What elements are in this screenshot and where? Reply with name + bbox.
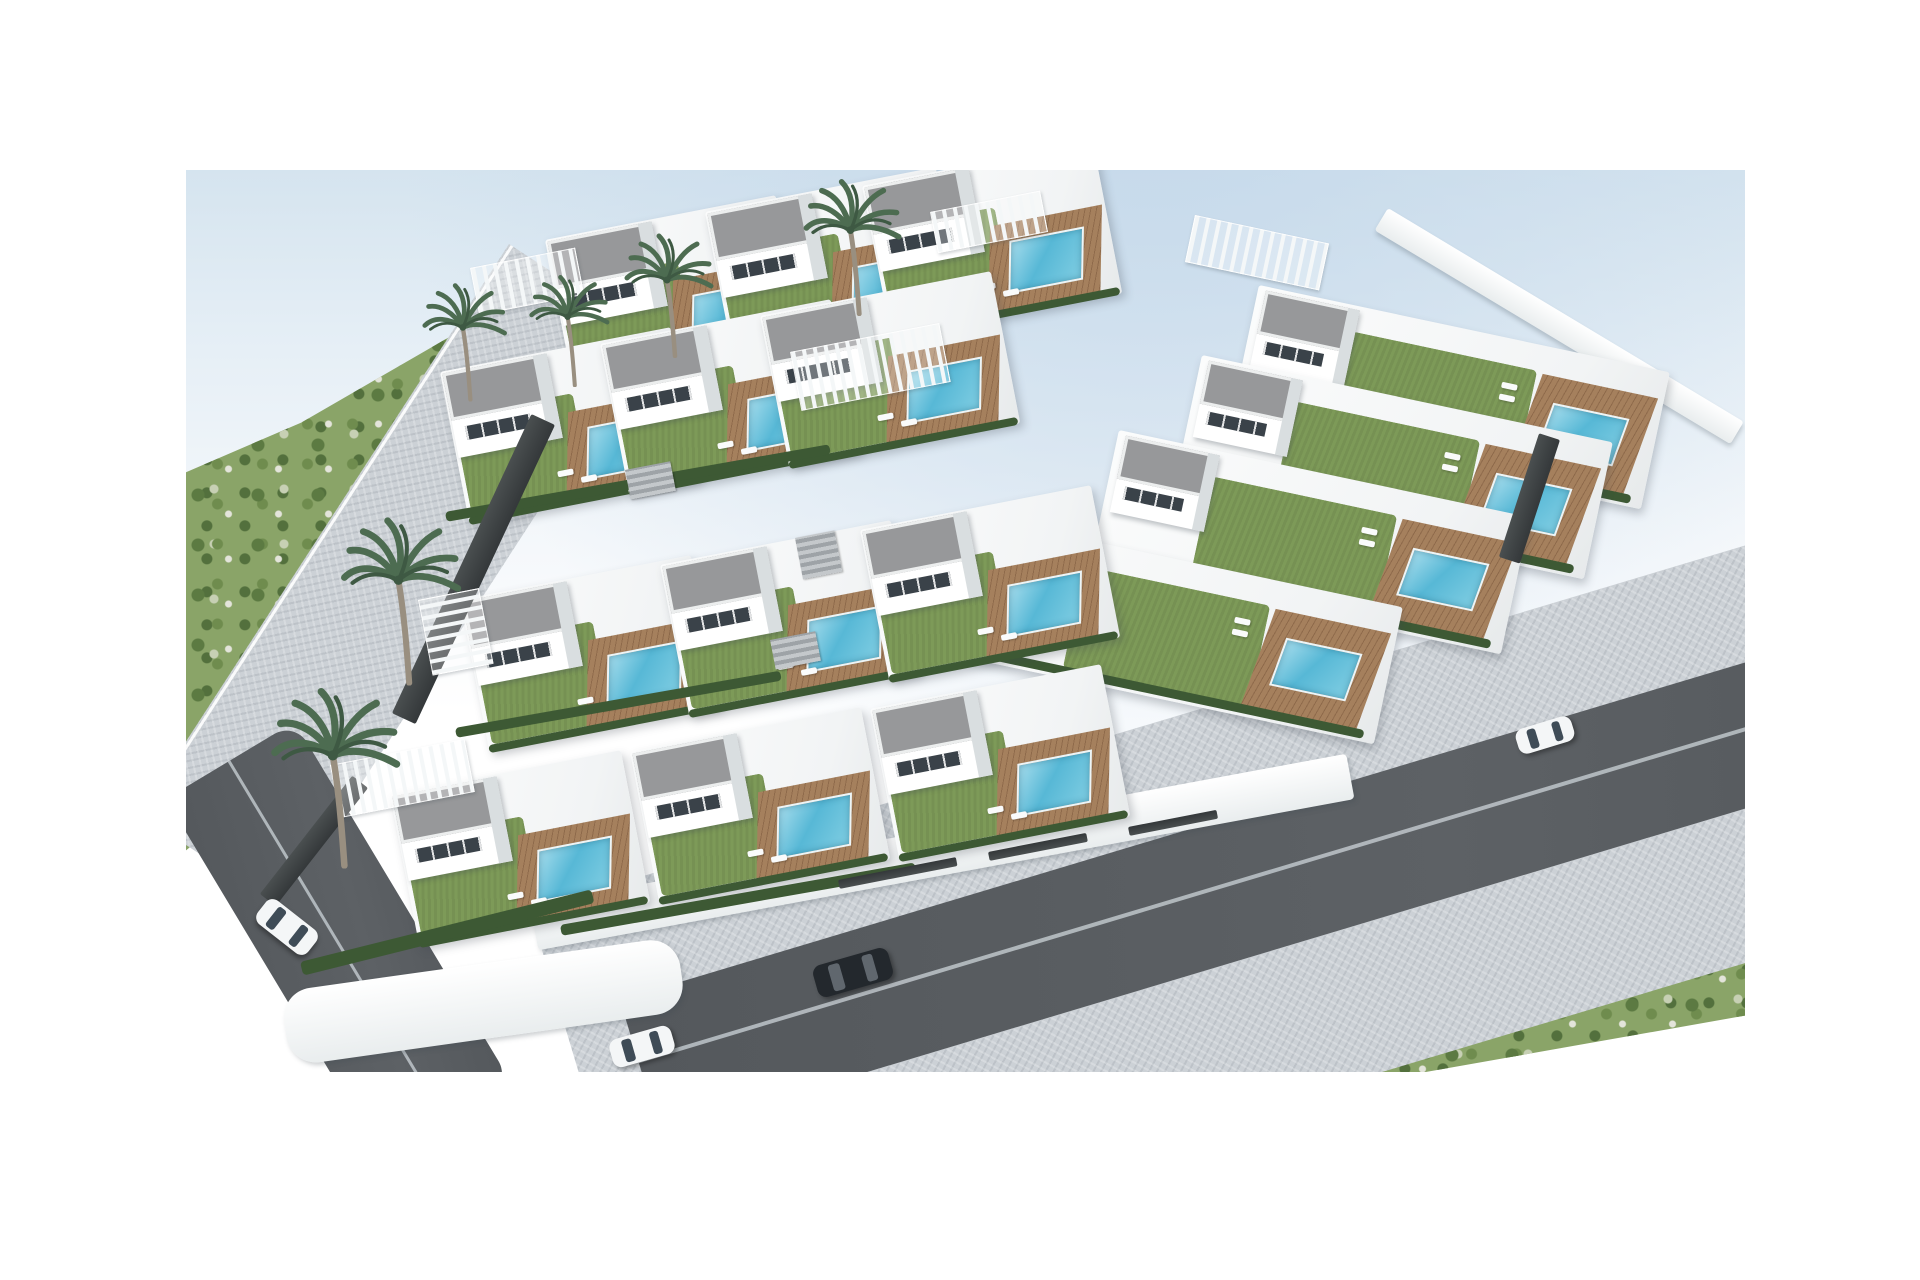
villa-windows: [895, 751, 962, 777]
villa-windows: [885, 572, 952, 598]
villa-windows: [625, 386, 692, 412]
car-windshield: [1525, 728, 1540, 750]
villa-swimming-pool: [1006, 570, 1082, 638]
palm-tree-icon: [528, 270, 618, 387]
villa-house: [1193, 361, 1303, 457]
palm-tree-icon: [339, 510, 474, 686]
villa-swimming-pool: [806, 605, 882, 673]
palm-tree-icon: [269, 680, 414, 869]
palm-tree: [269, 680, 414, 869]
palm-tree-icon: [802, 173, 912, 316]
villa-swimming-pool: [1269, 638, 1363, 702]
villa-windows: [415, 837, 482, 863]
palm-tree: [421, 278, 516, 402]
outdoor-stairs: [795, 530, 842, 579]
palm-tree: [528, 270, 618, 387]
villa-swimming-pool: [1396, 548, 1490, 612]
pergola: [1185, 215, 1329, 290]
villa-windows: [485, 642, 552, 668]
palm-tree-icon: [421, 278, 516, 402]
car-rear-window: [288, 924, 309, 948]
palm-tree-icon: [623, 228, 723, 358]
villa-windows: [655, 794, 722, 820]
villa-windows: [730, 254, 797, 280]
palm-tree: [802, 173, 912, 316]
palm-tree: [623, 228, 723, 358]
car-windshield: [264, 906, 287, 931]
villa-windows: [685, 607, 752, 633]
render-frame: [186, 170, 1745, 1072]
car-rear-window: [649, 1030, 663, 1054]
villa-swimming-pool: [776, 792, 852, 860]
car-windshield: [620, 1038, 636, 1063]
palm-tree: [339, 510, 474, 686]
villa-swimming-pool: [1016, 749, 1092, 817]
architectural-render-image: [0, 0, 1920, 1280]
car-rear-window: [861, 953, 878, 982]
villa-house: [1110, 436, 1220, 532]
car-windshield: [827, 963, 846, 992]
car-rear-window: [1551, 721, 1564, 742]
